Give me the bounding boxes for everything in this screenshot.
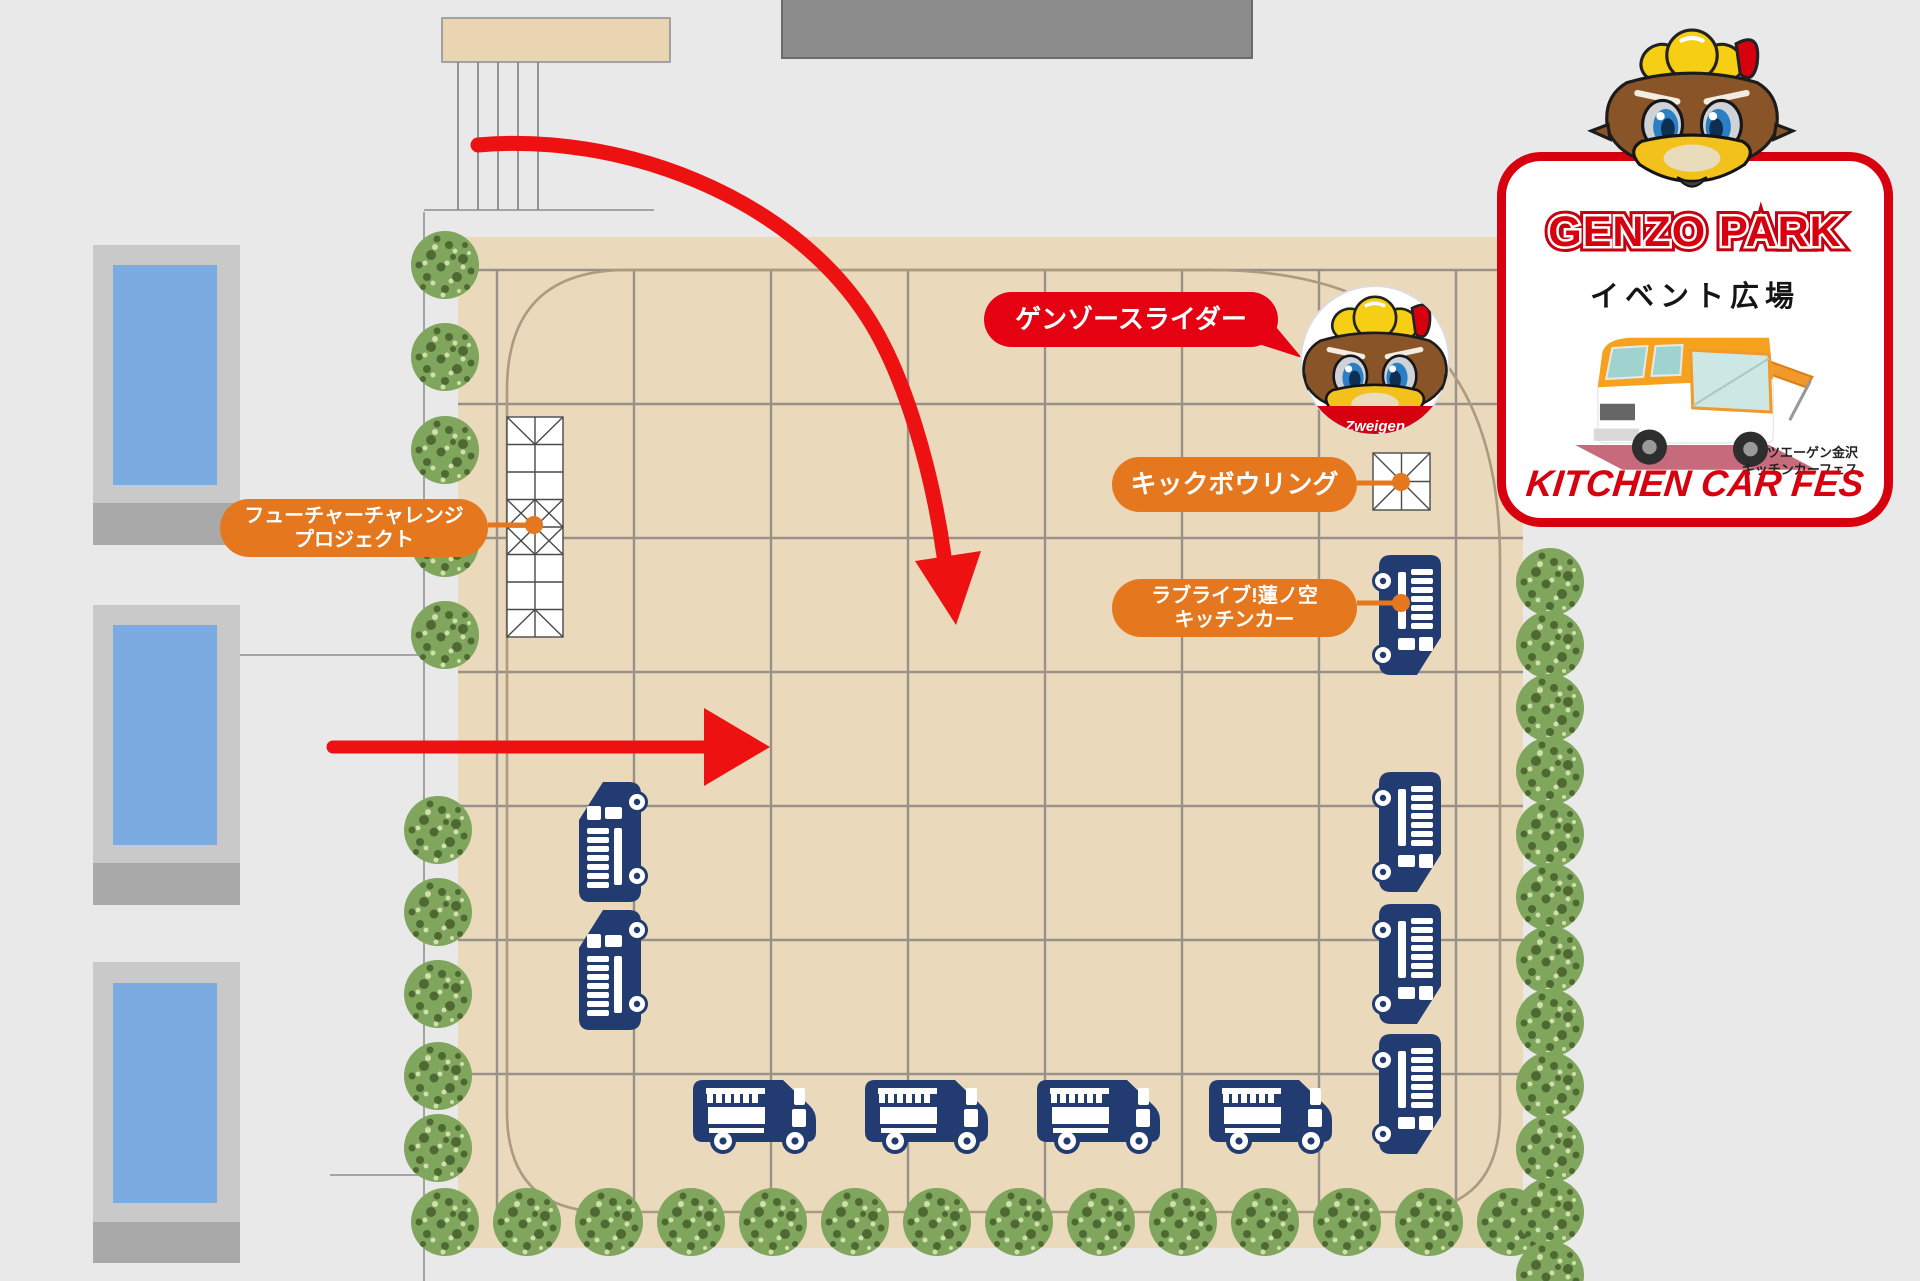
logo-subtitle: イベント広場	[1506, 273, 1884, 315]
left-buildings	[93, 245, 240, 1263]
tree-icon	[411, 1188, 479, 1256]
tree-icon	[1231, 1188, 1299, 1256]
tree-icon	[1516, 548, 1584, 616]
tree-row-right	[1516, 548, 1584, 1281]
tree-icon	[821, 1188, 889, 1256]
label-text: フューチャーチャレンジ	[220, 504, 488, 528]
tree-icon	[411, 416, 479, 484]
label-text: プロジェクト	[220, 528, 488, 552]
tree-icon	[404, 878, 472, 946]
tree-icon	[985, 1188, 1053, 1256]
tree-icon	[1516, 800, 1584, 868]
tree-icon	[1516, 863, 1584, 931]
tree-icon	[411, 601, 479, 669]
label-love-live-kitchen-car: ラブライブ!蓮ノ空 キッチンカー	[1112, 579, 1357, 637]
tree-icon	[739, 1188, 807, 1256]
tree-icon	[1516, 926, 1584, 994]
event-venue-map: Zweigen フューチャーチャレンジ プロジェクト ゲンゾースライダー キック…	[0, 0, 1920, 1281]
building	[93, 245, 240, 545]
building	[93, 962, 240, 1263]
tree-icon	[903, 1188, 971, 1256]
tree-icon	[1516, 1178, 1584, 1246]
tree-icon	[1516, 989, 1584, 1057]
tree-icon	[411, 323, 479, 391]
tree-icon	[1313, 1188, 1381, 1256]
label-future-challenge-project: フューチャーチャレンジ プロジェクト	[220, 499, 488, 557]
tree-icon	[1516, 1115, 1584, 1183]
label-text: ラブライブ!蓮ノ空	[1112, 584, 1357, 608]
label-text: キックボウリング	[1112, 469, 1357, 501]
tree-icon	[404, 1042, 472, 1110]
tree-icon	[1149, 1188, 1217, 1256]
tree-icon	[404, 960, 472, 1028]
label-kick-bowling: キックボウリング	[1112, 457, 1357, 512]
stairs-structure	[442, 18, 670, 210]
tree-icon	[404, 796, 472, 864]
label-text: ゲンゾースライダー	[984, 304, 1278, 336]
logo-credit-line: ツエーゲン金沢	[1742, 445, 1858, 462]
tree-icon	[1516, 611, 1584, 679]
tree-icon	[1516, 737, 1584, 805]
tree-icon	[1516, 674, 1584, 742]
building	[93, 605, 240, 905]
tree-icon	[1395, 1188, 1463, 1256]
tree-icon	[657, 1188, 725, 1256]
top-building	[782, 0, 1252, 58]
label-text: キッチンカー	[1112, 608, 1357, 632]
tree-icon	[404, 1114, 472, 1182]
tree-icon	[1067, 1188, 1135, 1256]
tree-icon	[411, 231, 479, 299]
label-genzo-slider: ゲンゾースライダー	[984, 292, 1278, 347]
logo-footer: KITCHEN CAR FES	[1504, 463, 1886, 505]
bird-mascot-icon	[1577, 22, 1807, 217]
tree-icon	[493, 1188, 561, 1256]
tree-icon	[1516, 1052, 1584, 1120]
tree-icon	[575, 1188, 643, 1256]
